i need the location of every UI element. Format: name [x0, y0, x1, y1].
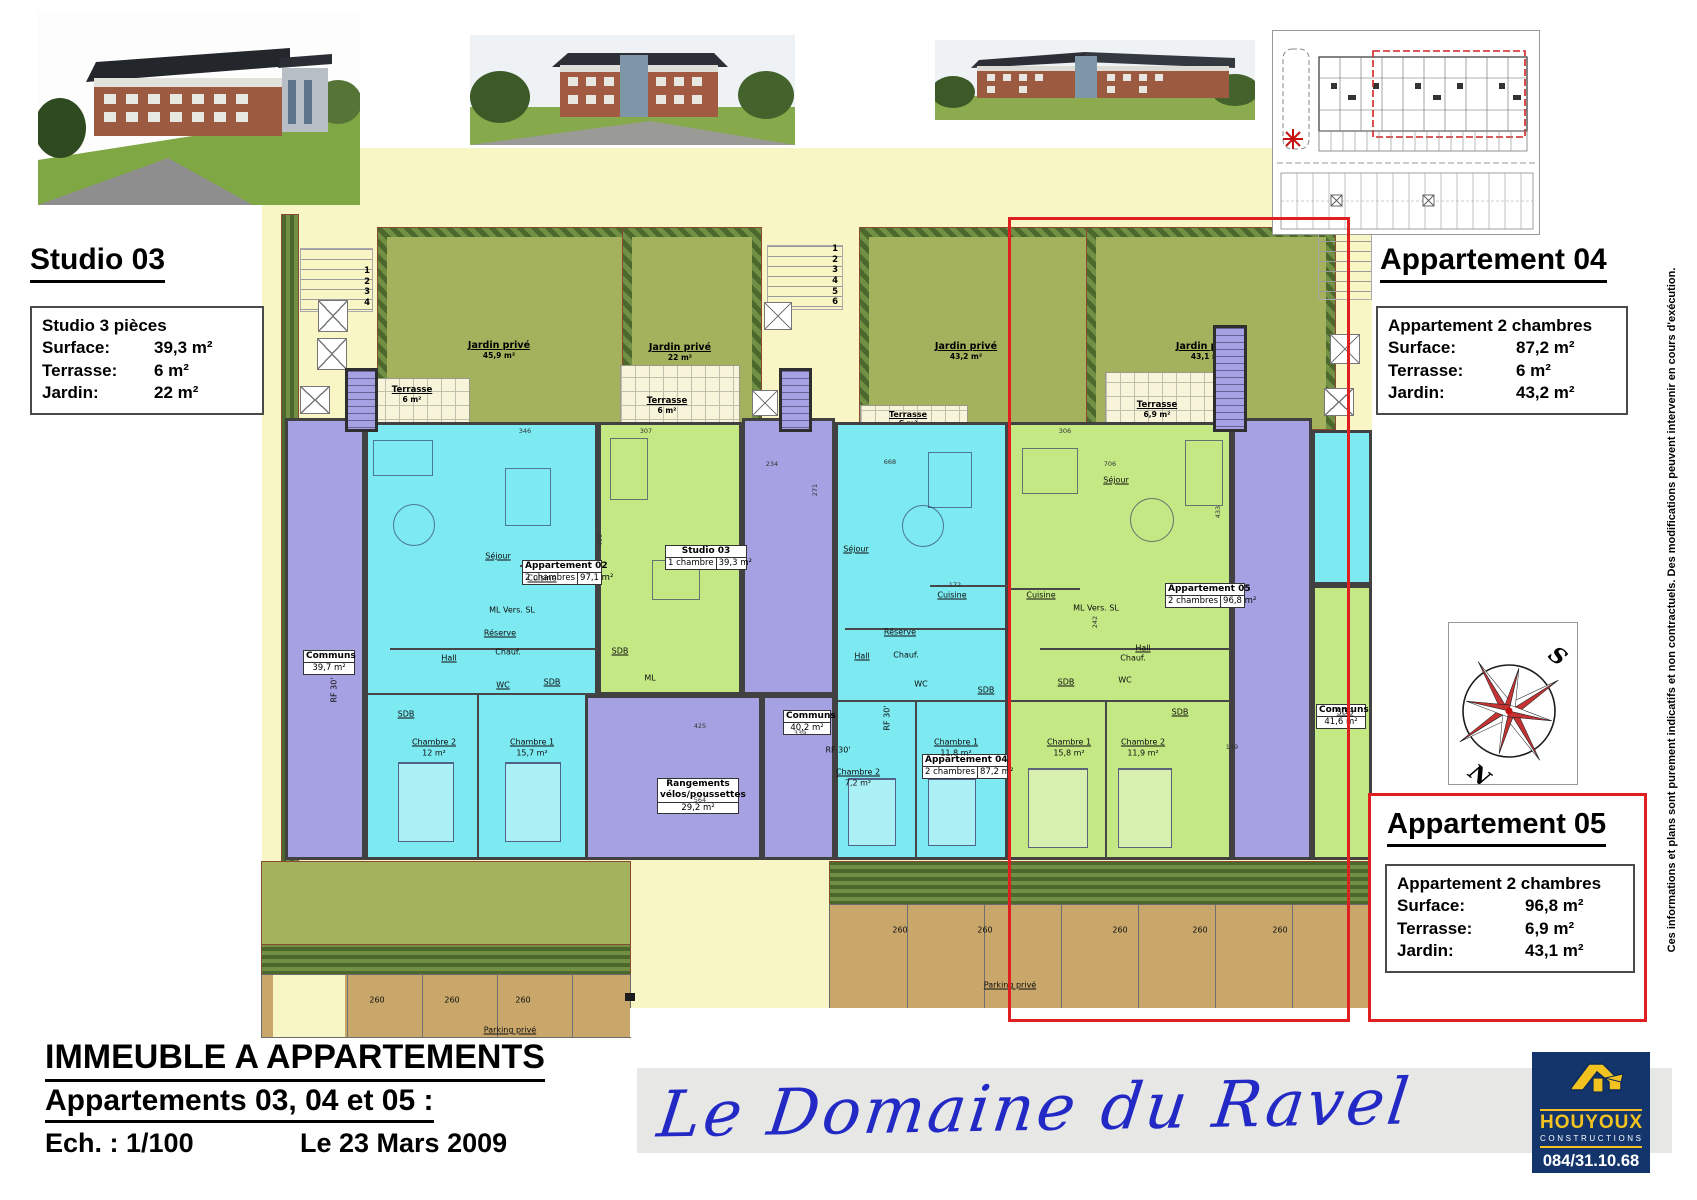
building-render-illustration	[38, 10, 360, 205]
dimension: 564	[694, 796, 706, 804]
parking-driveway-gap	[273, 975, 345, 1037]
label: Jardin:	[42, 382, 154, 404]
room-label: 7,2 m²	[845, 779, 871, 788]
room-label: WC	[496, 681, 510, 690]
label: Jardin:	[1388, 382, 1516, 404]
building-render-illustration	[470, 35, 795, 145]
room-label: Hall	[854, 652, 869, 661]
logo-subtitle: CONSTRUCTIONS	[1540, 1134, 1642, 1148]
wall	[930, 585, 1008, 587]
step-numbers-left: 12 34	[352, 266, 370, 309]
room-label: SDB	[978, 686, 995, 695]
room-label: ML	[644, 674, 655, 683]
sheet-subtitle: Appartements 03, 04 et 05 :	[45, 1084, 434, 1123]
room-label: Chauf.	[893, 651, 918, 660]
value: 87,2 m²	[1516, 337, 1616, 359]
communs-label-1: Communs 39,7 m²	[303, 650, 355, 675]
room-label: Séjour	[485, 552, 510, 561]
wall	[477, 695, 479, 858]
room-label: ML Vers. SL	[489, 606, 535, 615]
bed	[505, 762, 561, 842]
apt05-box-title: Appartement 2 chambres	[1397, 873, 1623, 895]
sofa	[610, 438, 648, 500]
wall	[838, 700, 1006, 702]
wall	[915, 702, 917, 858]
room-label: Chambre 1	[510, 738, 554, 747]
survey-mark	[625, 993, 635, 1001]
plan-sheet: Jardin privé45,9 m² Jardin privé22 m² Ja…	[0, 0, 1697, 1200]
unit-label-studio-03: Studio 03 1 chambre39,3 m²	[665, 545, 747, 570]
apt05-info-box: Appartement 2 chambres Surface: 96,8 m² …	[1385, 864, 1635, 973]
round-table	[393, 504, 435, 546]
hedge-band-left	[262, 945, 630, 975]
label: Surface:	[42, 337, 154, 359]
unit-label-appartement-04: Appartement 04 2 chambres87,2 m²	[922, 754, 1008, 779]
parking-space-number: 260	[515, 996, 530, 1005]
project-name-script: Le Domaine du Ravel	[654, 1065, 1416, 1152]
room-label: Hall	[441, 654, 456, 663]
project-banner: Le Domaine du Ravel	[637, 1068, 1672, 1153]
room-label: SDB	[398, 710, 415, 719]
bed	[398, 762, 454, 842]
dimension: 307	[640, 427, 652, 435]
skylight-icon	[318, 300, 348, 332]
compass-box: S N	[1448, 622, 1578, 785]
apt05-selection-rectangle	[1008, 217, 1350, 1022]
stair-block	[779, 368, 812, 432]
garden-label-3: Jardin privé43,2 m²	[935, 341, 997, 361]
skylight-icon	[764, 302, 792, 330]
terrace-label-2: Terrasse6 m²	[647, 396, 687, 415]
room-label: 12 m²	[422, 749, 446, 758]
garden-label-1: Jardin privé45,9 m²	[468, 340, 530, 360]
floor-plan-canvas: Jardin privé45,9 m² Jardin privé22 m² Ja…	[262, 148, 1372, 1037]
parking-space-number: 260	[369, 996, 384, 1005]
apt05-title: Appartement 05	[1387, 808, 1606, 847]
room-label: Chambre 1	[934, 738, 978, 747]
dimension: 234	[766, 460, 778, 468]
apt04-box-title: Appartement 2 chambres	[1388, 315, 1616, 337]
step-numbers-mid: 12 34 56	[820, 244, 838, 308]
building-render-illustration	[935, 40, 1255, 120]
dimension: 339	[794, 729, 806, 737]
table	[928, 452, 972, 508]
room-label: Cuisine	[527, 574, 556, 583]
apt04-info-box: Appartement 2 chambres Surface: 87,2 m² …	[1376, 306, 1628, 415]
room-label: Chambre 2	[412, 738, 456, 747]
logo-phone: 084/31.10.68	[1532, 1152, 1650, 1171]
label: Surface:	[1388, 337, 1516, 359]
room-label: Chauf.	[495, 648, 520, 657]
unit-communs-left	[285, 418, 365, 860]
sofa	[373, 440, 433, 476]
parking-space-number: 260	[977, 926, 992, 935]
rendering-perspective-1	[38, 10, 360, 205]
rear-garden-left	[262, 862, 630, 945]
communs-label-2: Communs 40,2 m²	[783, 710, 831, 735]
studio03-box-title: Studio 3 pièces	[42, 315, 252, 337]
unit-communs-mid	[742, 418, 835, 695]
label: Jardin:	[1397, 940, 1525, 962]
studio03-info-box: Studio 3 pièces Surface: 39,3 m² Terrass…	[30, 306, 264, 415]
value: 6 m²	[154, 360, 252, 382]
label: Terrasse:	[42, 360, 154, 382]
value: 39,3 m²	[154, 337, 252, 359]
dimension: 271	[811, 484, 819, 496]
parking-space-number: 260	[444, 996, 459, 1005]
room-label: WC	[914, 680, 928, 689]
skylight-icon	[317, 338, 347, 370]
site-location-star-icon	[1283, 129, 1303, 149]
room-label: 15,7 m²	[516, 749, 547, 758]
site-key-plan	[1272, 30, 1540, 235]
label: Terrasse:	[1397, 918, 1525, 940]
rendering-perspective-3	[935, 40, 1255, 120]
sheet-title: IMMEUBLE A APPARTEMENTS	[45, 1038, 545, 1082]
parking-space-number: 260	[892, 926, 907, 935]
label: Terrasse:	[1388, 360, 1516, 382]
value: 96,8 m²	[1525, 895, 1623, 917]
dimension: 172	[949, 581, 961, 589]
dimension: 668	[884, 458, 896, 466]
svg-text:S: S	[1543, 641, 1572, 671]
houyoux-logo: HOUYOUX CONSTRUCTIONS 084/31.10.68	[1532, 1052, 1650, 1173]
dimension: 499	[596, 534, 604, 546]
houyoux-logo-house-icon	[1532, 1052, 1650, 1104]
dimension: 425	[694, 722, 706, 730]
sheet-scale: Ech. : 1/100	[45, 1128, 194, 1159]
wall	[390, 648, 598, 650]
apt04-title: Appartement 04	[1380, 243, 1607, 283]
wall	[368, 693, 598, 695]
site-key-plan-drawing	[1273, 31, 1539, 234]
dimension: 346	[519, 427, 531, 435]
value: 6 m²	[1516, 360, 1616, 382]
room-label: Chambre 2	[836, 768, 880, 777]
bed	[848, 778, 896, 846]
sheet-date: Le 23 Mars 2009	[300, 1128, 507, 1159]
disclaimer-vertical-text: Ces informations et plans sont purement …	[1666, 260, 1678, 960]
stair-block	[345, 368, 378, 432]
room-label: Séjour	[843, 545, 868, 554]
table	[505, 468, 551, 526]
garden-label-2: Jardin privé22 m²	[649, 342, 711, 362]
terrace-label-1: Terrasse6 m²	[392, 385, 432, 404]
room-label: SDB	[612, 647, 629, 656]
room-label: Cuisine	[937, 591, 966, 600]
room-label: Réserve	[484, 629, 516, 638]
skylight-icon	[300, 386, 330, 414]
value: 43,1 m²	[1525, 940, 1623, 962]
rf30-label: RF 30'	[825, 746, 850, 755]
parking-label: Parking privé	[484, 1026, 536, 1035]
room-label: Réserve	[884, 628, 916, 637]
value: 6,9 m²	[1525, 918, 1623, 940]
value: 43,2 m²	[1516, 382, 1616, 404]
rf30-label: RF 30'	[883, 705, 892, 730]
room-label: SDB	[544, 678, 561, 687]
apt05-info-frame: Appartement 05 Appartement 2 chambres Su…	[1368, 793, 1647, 1022]
wall	[845, 628, 1005, 630]
studio03-title: Studio 03	[30, 243, 165, 283]
label: Surface:	[1397, 895, 1525, 917]
svg-text:N: N	[1463, 759, 1496, 784]
logo-name: HOUYOUX	[1540, 1109, 1642, 1134]
value: 22 m²	[154, 382, 252, 404]
skylight-icon	[752, 390, 778, 416]
bed	[928, 778, 976, 846]
rf30-label: RF 30'	[330, 677, 339, 702]
rendering-perspective-2	[470, 35, 795, 145]
compass-rose-icon: S N	[1449, 623, 1577, 784]
round-table	[902, 505, 944, 547]
room-label: 11,8 m²	[940, 749, 971, 758]
